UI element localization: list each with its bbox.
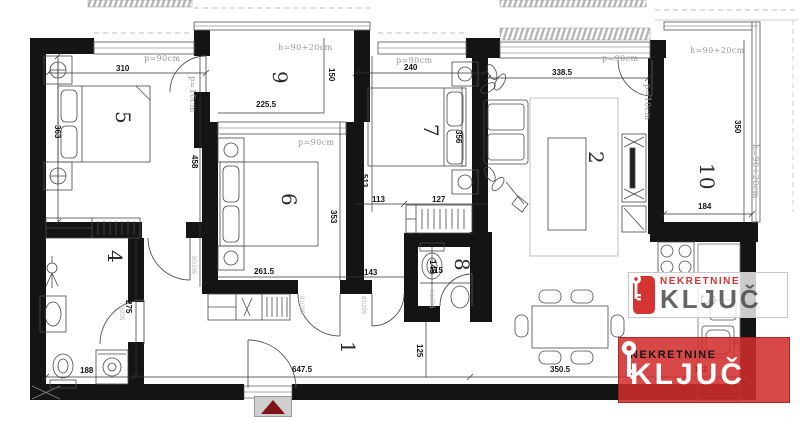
room-number-terrace1: 9	[268, 71, 292, 84]
dim-458: 458	[190, 155, 199, 168]
dim-corridor-width: 143	[364, 268, 377, 277]
dim-bath-width: 188	[80, 366, 93, 375]
dim-terrace10-width: 184	[698, 202, 711, 211]
room-number-bedroom1: 5	[111, 111, 135, 124]
rail-label-terrace10: h=90+20cm	[690, 46, 745, 55]
door-label-room5: 80/205	[190, 256, 196, 274]
rail-label-terrace9: h=90+20cm	[278, 43, 333, 52]
dim-living-width: 338.5	[552, 68, 572, 77]
room-number-bathroom: 4	[103, 250, 127, 263]
door-label-corridor: 81/205	[360, 296, 366, 314]
floorplan-canvas: 310 225.5 240 338.5 184 261.5 143 115 11…	[0, 0, 800, 421]
dim-bath-height: 275	[124, 300, 133, 313]
dim-356: 356	[454, 130, 463, 143]
dim-terrace9-width: 225.5	[256, 100, 276, 109]
dim-hall-width: 647.5	[292, 365, 312, 374]
logo-brand-word: KLJUČ	[660, 284, 762, 315]
dim-113: 113	[372, 195, 385, 204]
dim-room6-width: 261.5	[254, 267, 274, 276]
parapet-label-room7: p=90cm	[396, 56, 432, 65]
room-number-terrace2: 10	[695, 163, 719, 190]
threshold-label-room5: p=10cm	[188, 76, 197, 112]
dim-room7-height: 513	[360, 174, 369, 187]
dim-room5-height: 363	[53, 125, 62, 138]
key-icon	[619, 338, 639, 384]
key-icon	[633, 276, 655, 314]
room-number-bedroom3: 7	[419, 124, 443, 137]
logo-brand-word: KLJUČ	[630, 358, 745, 392]
entrance-marker	[254, 396, 292, 417]
room-number-wc: 8	[450, 258, 474, 271]
agency-logo-red: NEKRETNINE KLJUČ	[618, 337, 790, 403]
door-label-wc: 61/205	[428, 290, 434, 308]
parapet-label-room5: p=90cm	[144, 54, 180, 63]
room-number-hallway: 1	[336, 341, 360, 354]
rail-label-terrace10-side: h=90+20cm	[751, 144, 760, 199]
dim-wc-height: 145	[428, 260, 437, 273]
parapet-label-room6: p=90cm	[298, 138, 334, 147]
room-number-bedroom2: 6	[277, 193, 301, 206]
dim-dining-width: 350.5	[550, 365, 570, 374]
agency-logo-light: NEKRETNINE KLJUČ	[628, 272, 788, 318]
threshold-label-living: p=10cm	[643, 84, 652, 120]
dim-room6-height: 353	[329, 210, 338, 223]
door-label-bathroom: 70/205	[118, 302, 124, 320]
dim-127: 127	[432, 195, 445, 204]
parapet-label-living: p=90cm	[602, 54, 638, 63]
dim-terrace9-height: 150	[327, 68, 336, 81]
door-label-room6: 81/205	[298, 296, 304, 314]
dim-hall-height: 125	[415, 344, 424, 357]
dim-room5-width: 310	[116, 64, 129, 73]
room-number-living: 2	[584, 151, 608, 164]
dim-terrace10-height: 350	[733, 120, 742, 133]
entrance-triangle-icon	[261, 400, 285, 414]
